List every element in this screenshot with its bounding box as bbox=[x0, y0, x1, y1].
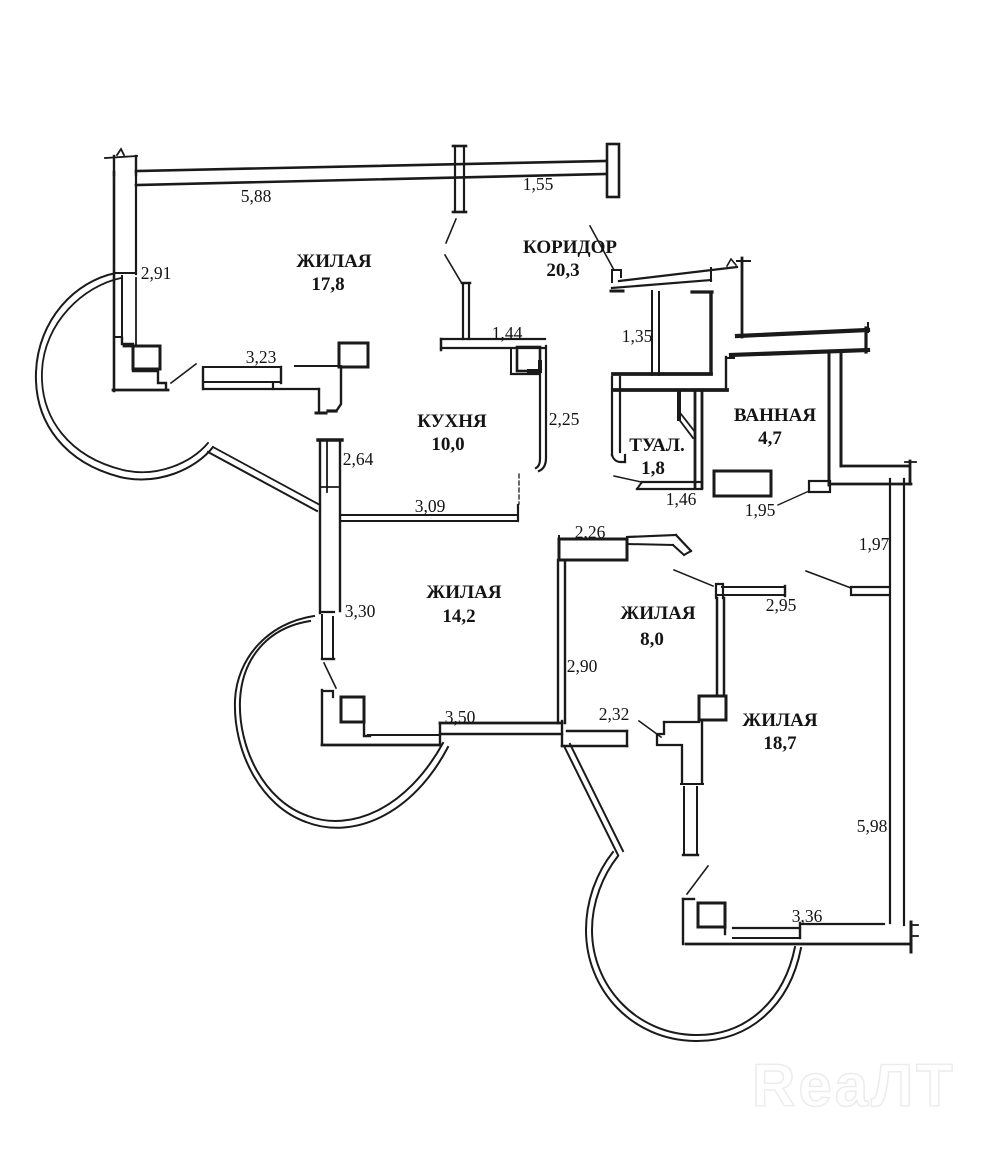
svg-text:КУХНЯ: КУХНЯ bbox=[417, 411, 487, 432]
svg-text:1,97: 1,97 bbox=[859, 534, 890, 554]
svg-text:КОРИДОР: КОРИДОР bbox=[523, 237, 617, 258]
svg-text:2,32: 2,32 bbox=[599, 704, 630, 724]
svg-text:ЖИЛАЯ: ЖИЛАЯ bbox=[620, 603, 695, 624]
svg-text:ЖИЛАЯ: ЖИЛАЯ bbox=[426, 582, 501, 603]
svg-text:2,25: 2,25 bbox=[549, 409, 580, 429]
svg-text:ЖИЛАЯ: ЖИЛАЯ bbox=[296, 251, 371, 272]
svg-text:3,09: 3,09 bbox=[415, 496, 446, 516]
svg-text:3,30: 3,30 bbox=[345, 601, 376, 621]
svg-text:ЖИЛАЯ: ЖИЛАЯ bbox=[742, 710, 817, 731]
svg-text:3,50: 3,50 bbox=[445, 707, 476, 727]
svg-text:20,3: 20,3 bbox=[546, 260, 579, 281]
svg-text:2,26: 2,26 bbox=[575, 522, 606, 542]
svg-text:1,8: 1,8 bbox=[641, 458, 665, 479]
svg-text:3,36: 3,36 bbox=[792, 906, 823, 926]
svg-text:18,7: 18,7 bbox=[763, 733, 797, 754]
svg-text:ВАННАЯ: ВАННАЯ bbox=[734, 405, 816, 426]
svg-text:ReaЛТ: ReaЛТ bbox=[752, 1052, 956, 1119]
svg-text:2,91: 2,91 bbox=[141, 263, 172, 283]
svg-text:ТУАЛ.: ТУАЛ. bbox=[629, 435, 685, 456]
svg-text:1,95: 1,95 bbox=[745, 500, 776, 520]
svg-text:17,8: 17,8 bbox=[311, 274, 344, 295]
svg-text:3,23: 3,23 bbox=[246, 347, 277, 367]
svg-text:1,55: 1,55 bbox=[523, 174, 554, 194]
svg-text:5,98: 5,98 bbox=[857, 816, 888, 836]
svg-text:1,44: 1,44 bbox=[492, 323, 523, 343]
svg-text:4,7: 4,7 bbox=[758, 428, 782, 449]
svg-text:10,0: 10,0 bbox=[431, 434, 464, 455]
svg-text:8,0: 8,0 bbox=[640, 629, 664, 650]
svg-text:2,95: 2,95 bbox=[766, 595, 797, 615]
svg-text:1,35: 1,35 bbox=[622, 326, 653, 346]
svg-text:2,90: 2,90 bbox=[567, 656, 598, 676]
svg-text:14,2: 14,2 bbox=[442, 606, 475, 627]
svg-text:2,64: 2,64 bbox=[343, 449, 374, 469]
svg-text:5,88: 5,88 bbox=[241, 186, 272, 206]
svg-text:1,46: 1,46 bbox=[666, 489, 697, 509]
